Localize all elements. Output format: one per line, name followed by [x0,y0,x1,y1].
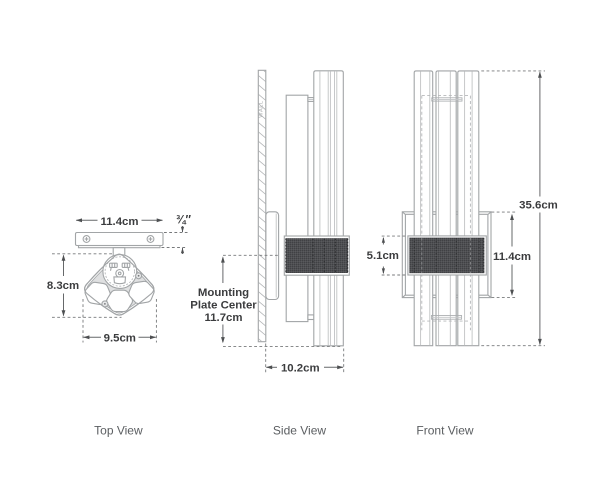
svg-text:11.7cm: 11.7cm [204,312,242,324]
svg-text:Front View: Front View [416,424,473,438]
svg-text:WALL: WALL [259,100,265,117]
svg-text:10.2cm: 10.2cm [281,363,320,375]
svg-text:Mounting: Mounting [198,287,249,299]
svg-text:5.1cm: 5.1cm [367,250,399,262]
svg-text:11.4cm: 11.4cm [100,216,138,228]
svg-text:¾″: ¾″ [176,215,192,227]
svg-text:Side View: Side View [273,424,326,438]
svg-text:35.6cm: 35.6cm [519,200,558,212]
svg-text:8.3cm: 8.3cm [47,280,79,292]
svg-text:9.5cm: 9.5cm [104,333,136,345]
svg-text:11.4cm: 11.4cm [493,251,531,263]
svg-text:Plate Center: Plate Center [190,300,257,312]
svg-text:Top View: Top View [94,424,143,438]
